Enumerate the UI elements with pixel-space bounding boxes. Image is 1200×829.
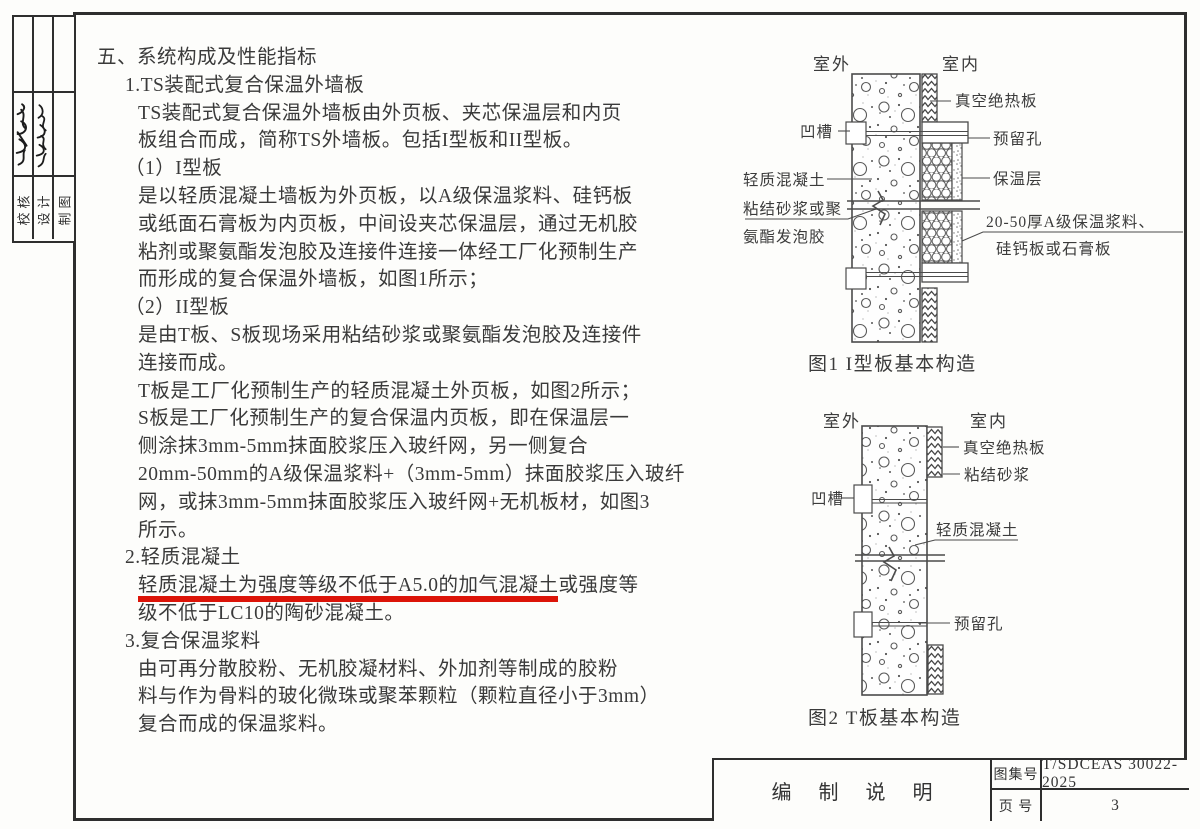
body-text-line: 而形成的复合保温外墙板，如图1所示；	[97, 266, 677, 294]
side-label-check-text: 校核	[14, 191, 33, 225]
text-segment: 连接而成。	[138, 353, 238, 374]
body-text-line: （1）I型板	[97, 155, 677, 183]
signature-table: 校核 设计 制图	[12, 15, 76, 243]
fig1-indoor-label: 室内	[942, 55, 980, 74]
text-segment: （2）II型板	[125, 297, 229, 318]
red-underlined-text: 轻质混凝土为强度等级不低于A5.0的加气混凝土	[138, 575, 558, 602]
fig2-vacuum-panel-label: 真空绝热板	[963, 439, 1046, 457]
text-segment: 侧涂抹3mm-5mm抹面胶浆压入玻纤网，另一侧复合	[138, 436, 588, 457]
body-text-line: 是以轻质混凝土墙板为外页板，以A级保温浆料、硅钙板	[97, 183, 677, 211]
text-segment: 是以轻质混凝土墙板为外页板，以A级保温浆料、硅钙板	[138, 186, 633, 207]
doc-title: 编 制 说 明	[714, 760, 992, 821]
signature-table-empty-cell	[14, 17, 34, 93]
text-segment: 板组合而成，简称TS外墙板。包括I型板和II型板。	[138, 130, 583, 151]
side-label-design: 设计	[34, 177, 54, 239]
body-text-line: 板组合而成，简称TS外墙板。包括I型板和II型板。	[97, 127, 677, 155]
body-text-line: 侧涂抹3mm-5mm抹面胶浆压入玻纤网，另一侧复合	[97, 433, 677, 461]
figure-2-wall-section: 室外 室内 真空绝热板 粘结砂浆 凹槽 轻质混凝土 预留孔 图2 T板基本构造	[730, 400, 1186, 740]
text-segment: 而形成的复合保温外墙板，如图1所示；	[138, 269, 488, 290]
body-text-line: 网，或抹3mm-5mm抹面胶浆压入玻纤网+无机板材，如图3	[97, 489, 677, 517]
fig1-outdoor-label: 室外	[813, 55, 851, 74]
body-text-line: （2）II型板	[97, 294, 677, 322]
fig1-insulation-label: 保温层	[993, 170, 1043, 188]
fig1-lwc-label: 轻质混凝土	[743, 171, 826, 189]
fig2-lwc-label: 轻质混凝土	[936, 521, 1019, 539]
fig1-slurry-strip-lower	[952, 211, 962, 263]
body-text-line: 复合而成的保温浆料。	[97, 711, 677, 739]
fig2-caption: 图2 T板基本构造	[808, 707, 961, 729]
fig1-insulation-honeycomb-lower	[922, 211, 952, 263]
fig2-indoor-label: 室内	[970, 412, 1008, 431]
page-no-label: 页 号	[992, 790, 1042, 821]
text-segment: S板是工厂化预制生产的复合保温内页板，即在保温层一	[138, 408, 629, 429]
body-text-line: 所示。	[97, 517, 677, 545]
fig1-slurry-label-line1: 20-50厚A级保温浆料、	[986, 213, 1155, 231]
signature-cell-draft-empty	[54, 93, 74, 177]
text-segment: 复合而成的保温浆料。	[138, 714, 338, 735]
text-segment: 由可再分散胶粉、无机胶凝材料、外加剂等制成的胶粉	[138, 659, 618, 680]
fig1-reserved-hole-label: 预留孔	[993, 130, 1043, 148]
fig1-slurry-strip-upper	[952, 143, 962, 200]
fig1-mortar-label-line2: 氨酯发泡胶	[743, 228, 826, 246]
title-block: 编 制 说 明 图集号 T/SDCEAS 30022-2025 页 号 3	[712, 758, 1187, 821]
atlas-no-value: T/SDCEAS 30022-2025	[1042, 760, 1189, 790]
body-text-line: 或纸面石膏板为内页板，中间设夹芯保温层，通过无机胶	[97, 211, 677, 239]
body-text-line: 3.复合保温浆料	[97, 628, 677, 656]
signature-handwriting	[34, 94, 52, 174]
body-text-line: 粘剂或聚氨酯发泡胶及连接件连接一体经工厂化预制生产	[97, 239, 677, 267]
text-segment: 料与作为骨料的玻化微珠或聚苯颗粒（颗粒直径小于3mm）	[138, 686, 660, 707]
fig1-caption: 图1 I型板基本构造	[808, 353, 977, 375]
fig1-groove-label: 凹槽	[800, 123, 833, 141]
body-text-line: 轻质混凝土为强度等级不低于A5.0的加气混凝土或强度等	[97, 572, 677, 600]
body-text-line: 1.TS装配式复合保温外墙板	[97, 72, 677, 100]
side-label-draft: 制图	[54, 177, 74, 239]
text-segment: 20mm-50mm的A级保温浆料+（3mm-5mm）抹面胶浆压入玻纤	[138, 464, 685, 485]
body-text-line: 料与作为骨料的玻化微珠或聚苯颗粒（颗粒直径小于3mm）	[97, 683, 677, 711]
text-segment: 网，或抹3mm-5mm抹面胶浆压入玻纤网+无机板材，如图3	[138, 492, 650, 513]
fig2-groove-notch-upper	[854, 485, 872, 513]
side-label-check: 校核	[14, 177, 34, 239]
text-segment: 或强度等	[558, 575, 638, 596]
signature-table-empty-cell	[34, 17, 54, 93]
body-text-line: 连接而成。	[97, 350, 677, 378]
text-segment: 是由T板、S板现场采用粘结砂浆或聚氨酯发泡胶及连接件	[138, 325, 642, 346]
signature-table-empty-cell	[54, 17, 74, 93]
fig1-vacuum-panel-hatch-bottom	[922, 288, 937, 342]
fig1-vacuum-panel-label: 真空绝热板	[955, 92, 1038, 110]
page-no-value: 3	[1042, 790, 1189, 821]
fig2-vacuum-panel-hatch-bottom	[928, 645, 943, 694]
signature-handwriting	[14, 94, 32, 174]
text-segment: 3.复合保温浆料	[125, 631, 261, 652]
text-segment: 五、系统构成及性能指标	[97, 47, 317, 68]
body-text-line: 级不低于LC10的陶砂混凝土。	[97, 600, 677, 628]
figure-1-wall-section: 室外 室内 真空绝热板 预留孔 保温层 20-50厚A级保温浆料、 硅钙板或石膏…	[730, 45, 1186, 390]
body-text-line: T板是工厂化预制生产的轻质混凝土外页板，如图2所示；	[97, 378, 677, 406]
fig2-groove-notch-lower	[854, 612, 872, 637]
fig2-outdoor-label: 室外	[823, 412, 861, 431]
signature-cell-check	[14, 93, 34, 177]
scanned-atlas-page: { "side": { "labels": ["校核", "设计", "制图"]…	[0, 0, 1200, 829]
text-segment: T板是工厂化预制生产的轻质混凝土外页板，如图2所示；	[138, 381, 641, 402]
fig1-insulation-honeycomb-upper	[922, 143, 952, 200]
fig2-reserved-hole-label: 预留孔	[954, 615, 1004, 633]
body-text-line: 20mm-50mm的A级保温浆料+（3mm-5mm）抹面胶浆压入玻纤	[97, 461, 677, 489]
text-segment: 所示。	[138, 520, 198, 541]
text-segment: 1.TS装配式复合保温外墙板	[125, 75, 364, 96]
fig1-slurry-label-line2: 硅钙板或石膏板	[996, 240, 1112, 258]
side-label-draft-text: 制图	[55, 191, 74, 225]
atlas-no-label: 图集号	[992, 760, 1042, 790]
body-text-line: TS装配式复合保温外墙板由外页板、夹芯保温层和内页	[97, 100, 677, 128]
fig1-vacuum-panel-hatch-top	[922, 74, 937, 122]
fig1-lightweight-concrete-panel	[852, 74, 920, 342]
body-text-line: 是由T板、S板现场采用粘结砂浆或聚氨酯发泡胶及连接件	[97, 322, 677, 350]
body-text-line: 五、系统构成及性能指标	[97, 44, 677, 72]
fig1-groove-notch-upper	[846, 122, 866, 144]
fig1-mortar-label-line1: 粘结砂浆或聚	[743, 200, 842, 218]
fig2-vacuum-panel-hatch-top	[927, 427, 942, 477]
body-text: 五、系统构成及性能指标1.TS装配式复合保温外墙板TS装配式复合保温外墙板由外页…	[97, 44, 677, 739]
text-segment: 2.轻质混凝土	[125, 547, 241, 568]
text-segment: 或纸面石膏板为内页板，中间设夹芯保温层，通过无机胶	[138, 214, 638, 235]
signature-cell-design	[34, 93, 54, 177]
fig2-bonding-mortar-label: 粘结砂浆	[964, 466, 1030, 484]
text-segment: （1）I型板	[125, 158, 222, 179]
fig1-reserved-hole-box-upper	[922, 122, 968, 143]
body-text-line: 2.轻质混凝土	[97, 544, 677, 572]
text-segment: 级不低于LC10的陶砂混凝土。	[138, 603, 404, 624]
body-text-line: 由可再分散胶粉、无机胶凝材料、外加剂等制成的胶粉	[97, 656, 677, 684]
text-segment: TS装配式复合保温外墙板由外页板、夹芯保温层和内页	[138, 103, 622, 124]
text-segment: 粘剂或聚氨酯发泡胶及连接件连接一体经工厂化预制生产	[138, 242, 638, 263]
fig2-groove-label: 凹槽	[811, 490, 844, 508]
side-label-design-text: 设计	[34, 191, 53, 225]
body-text-line: S板是工厂化预制生产的复合保温内页板，即在保温层一	[97, 405, 677, 433]
fig1-groove-notch-lower	[846, 268, 866, 289]
